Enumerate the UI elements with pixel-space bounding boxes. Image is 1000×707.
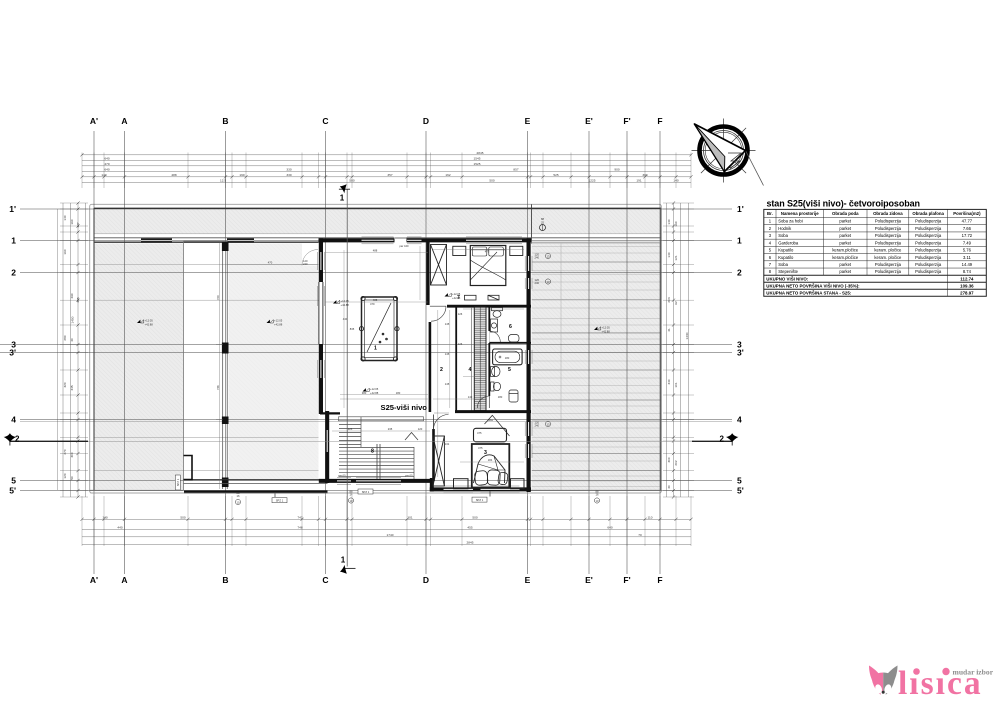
svg-text:7.66: 7.66: [963, 226, 972, 231]
svg-text:13: 13: [547, 422, 550, 426]
svg-text:488: 488: [171, 173, 176, 177]
svg-text:7.49: 7.49: [963, 240, 972, 245]
svg-text:140: 140: [102, 516, 107, 520]
svg-text:UKUPNA NETO POVRŠINA STANA - S: UKUPNA NETO POVRŠINA STANA - S25:: [766, 290, 852, 295]
svg-text:Stepenište: Stepenište: [778, 269, 798, 274]
svg-text:2845: 2845: [477, 151, 484, 155]
svg-text:2: 2: [11, 268, 16, 278]
svg-text:640: 640: [104, 157, 109, 161]
svg-text:mudar izbor: mudar izbor: [953, 668, 994, 677]
svg-text:240: 240: [303, 262, 308, 266]
svg-text:112.74: 112.74: [960, 276, 974, 281]
svg-text:parket: parket: [839, 233, 851, 238]
svg-text:2845: 2845: [467, 541, 474, 545]
svg-text:A': A': [90, 116, 98, 126]
svg-text:395: 395: [76, 297, 80, 302]
svg-text:525: 525: [553, 173, 558, 177]
svg-text:309: 309: [642, 173, 647, 177]
svg-text:270: 270: [63, 449, 67, 454]
svg-text:2: 2: [440, 367, 443, 373]
svg-text:Poludisperzija: Poludisperzija: [875, 262, 902, 267]
svg-text:490: 490: [70, 293, 74, 298]
svg-text:300: 300: [667, 457, 671, 462]
svg-text:2: 2: [720, 434, 725, 443]
svg-text:748: 748: [216, 385, 220, 390]
svg-text:F: F: [657, 575, 662, 585]
svg-text:120: 120: [418, 427, 423, 431]
svg-text:500: 500: [349, 179, 354, 183]
svg-text:F: F: [657, 116, 662, 126]
svg-text:+42.88: +42.88: [452, 296, 461, 300]
svg-text:C: C: [322, 116, 328, 126]
svg-text:345: 345: [70, 385, 74, 390]
svg-text:500: 500: [472, 516, 477, 520]
svg-text:F': F': [623, 575, 630, 585]
svg-text:+12.05: +12.05: [602, 326, 611, 330]
svg-text:147: 147: [76, 222, 80, 227]
svg-text:145: 145: [445, 322, 450, 326]
svg-text:Poludisperzija: Poludisperzija: [875, 240, 902, 245]
svg-text:235: 235: [388, 427, 393, 431]
svg-text:1545: 1545: [474, 157, 481, 161]
svg-text:1450: 1450: [71, 316, 75, 323]
svg-text:Namena prostorije: Namena prostorije: [781, 211, 819, 216]
svg-text:184: 184: [488, 458, 493, 462]
svg-text:488: 488: [373, 248, 378, 252]
svg-text:+42.88: +42.88: [274, 323, 283, 327]
svg-text:440: 440: [117, 526, 122, 530]
svg-text:470: 470: [268, 261, 273, 265]
svg-text:SPZ 1: SPZ 1: [362, 490, 370, 494]
svg-text:par 100: par 100: [399, 244, 409, 248]
svg-text:640: 640: [104, 168, 109, 172]
svg-text:25: 25: [541, 221, 544, 225]
svg-text:70: 70: [638, 533, 642, 537]
svg-text:145: 145: [445, 352, 450, 356]
svg-text:1: 1: [341, 556, 346, 565]
svg-text:+12.05: +12.05: [145, 319, 154, 323]
svg-text:4: 4: [11, 415, 16, 425]
svg-text:2: 2: [737, 268, 742, 278]
svg-text:B: B: [222, 116, 228, 126]
svg-text:160: 160: [70, 219, 74, 224]
svg-text:1225: 1225: [589, 179, 596, 183]
svg-text:180: 180: [505, 356, 510, 360]
svg-text:320: 320: [63, 382, 67, 387]
svg-text:5': 5': [737, 486, 744, 496]
svg-text:160: 160: [63, 249, 67, 254]
svg-text:Obrada poda: Obrada poda: [832, 211, 859, 216]
svg-text:3': 3': [9, 348, 16, 358]
svg-text:357: 357: [387, 173, 392, 177]
svg-text:121: 121: [674, 255, 678, 260]
svg-text:parket: parket: [839, 269, 851, 274]
svg-text:SPZ 1: SPZ 1: [476, 498, 484, 502]
svg-text:stan S25(viši nivo)- četvoroip: stan S25(viši nivo)- četvoroiposoban: [767, 199, 920, 209]
svg-text:140: 140: [101, 173, 106, 177]
svg-text:Poludisperzija: Poludisperzija: [915, 240, 942, 245]
svg-text:10: 10: [237, 500, 240, 504]
svg-text:+12.05: +12.05: [370, 387, 379, 391]
svg-text:12.5: 12.5: [220, 179, 226, 183]
svg-text:340: 340: [667, 379, 671, 384]
svg-text:parket: parket: [839, 240, 851, 245]
svg-text:parket: parket: [839, 219, 851, 224]
svg-text:parket: parket: [839, 226, 851, 231]
svg-text:E: E: [525, 575, 531, 585]
svg-text:101: 101: [407, 516, 412, 520]
svg-text:3.11: 3.11: [963, 255, 972, 260]
svg-text:455: 455: [467, 526, 472, 530]
svg-text:50: 50: [70, 476, 74, 480]
svg-text:160: 160: [674, 221, 678, 226]
svg-text:keram. pločice: keram. pločice: [874, 248, 902, 253]
svg-text:+12.05: +12.05: [341, 299, 350, 303]
svg-text:8.74: 8.74: [963, 269, 972, 274]
svg-text:5.76: 5.76: [963, 248, 972, 253]
svg-text:D: D: [423, 575, 429, 585]
svg-text:Poludisperzija: Poludisperzija: [915, 255, 942, 260]
svg-text:SPZ 1: SPZ 1: [176, 478, 180, 486]
svg-text:14.49: 14.49: [962, 262, 973, 267]
svg-text:479: 479: [370, 302, 375, 306]
svg-text:Obrada plafona: Obrada plafona: [912, 211, 944, 216]
svg-text:1: 1: [374, 346, 377, 352]
svg-text:140: 140: [673, 179, 678, 183]
svg-text:par.60: par.60: [338, 473, 346, 477]
svg-text:190: 190: [239, 173, 244, 177]
svg-text:140: 140: [468, 395, 473, 399]
svg-text:500: 500: [180, 516, 185, 520]
svg-text:Kupatilo: Kupatilo: [778, 248, 794, 253]
svg-text:62: 62: [674, 301, 678, 305]
svg-text:131: 131: [445, 442, 450, 446]
svg-text:120: 120: [63, 473, 67, 478]
svg-text:110: 110: [648, 516, 653, 520]
svg-text:Hodnik: Hodnik: [778, 226, 792, 231]
svg-text:Poludisperzija: Poludisperzija: [915, 219, 942, 224]
svg-text:1': 1': [737, 204, 744, 214]
svg-text:56w: 56w: [488, 418, 493, 422]
svg-text:Poludisperzija: Poludisperzija: [875, 219, 902, 224]
svg-text:13: 13: [547, 254, 550, 258]
svg-text:140: 140: [667, 219, 671, 224]
svg-text:5: 5: [737, 476, 742, 486]
svg-text:300: 300: [70, 452, 74, 457]
svg-text:6: 6: [509, 324, 512, 330]
svg-text:41: 41: [667, 328, 671, 332]
svg-text:keram.pločice: keram.pločice: [832, 255, 859, 260]
svg-text:UKUPNO VIŠI NIVO:: UKUPNO VIŠI NIVO:: [766, 276, 808, 281]
svg-text:475: 475: [485, 249, 490, 253]
svg-text:A: A: [121, 116, 127, 126]
svg-text:1430: 1430: [685, 332, 689, 339]
svg-text:10: 10: [350, 499, 353, 503]
svg-text:+12.05: +12.05: [274, 319, 283, 323]
svg-text:E': E': [585, 116, 593, 126]
svg-text:1: 1: [737, 236, 742, 246]
svg-text:278.97: 278.97: [960, 290, 974, 295]
svg-text:1: 1: [340, 194, 345, 203]
svg-text:Poludisperzija: Poludisperzija: [915, 233, 942, 238]
svg-text:180: 180: [396, 391, 401, 395]
svg-text:+42.88: +42.88: [145, 323, 154, 327]
svg-text:16: 16: [350, 493, 353, 497]
svg-text:202: 202: [674, 460, 678, 465]
svg-text:5: 5: [508, 367, 511, 373]
svg-text:17.72: 17.72: [962, 233, 973, 238]
svg-text:500: 500: [489, 179, 494, 183]
svg-text:857: 857: [513, 168, 518, 172]
svg-text:1525: 1525: [474, 162, 481, 166]
svg-text:330: 330: [286, 168, 291, 172]
svg-text:30: 30: [667, 485, 671, 489]
svg-text:2: 2: [15, 434, 20, 443]
svg-text:16: 16: [596, 493, 599, 497]
svg-text:1': 1': [9, 204, 16, 214]
svg-text:B: B: [222, 575, 228, 585]
svg-text:125: 125: [348, 427, 353, 431]
svg-text:240: 240: [535, 424, 540, 428]
svg-text:88: 88: [541, 217, 544, 221]
svg-text:Soba: Soba: [778, 262, 788, 267]
svg-text:1: 1: [11, 236, 16, 246]
svg-text:8: 8: [371, 449, 374, 455]
svg-text:S25-viši nivo: S25-viši nivo: [381, 403, 428, 412]
svg-text:140: 140: [667, 252, 671, 257]
svg-text:835: 835: [350, 327, 355, 331]
svg-text:140: 140: [63, 215, 67, 220]
svg-text:Poludisperzija: Poludisperzija: [875, 233, 902, 238]
svg-text:Br.: Br.: [767, 211, 773, 216]
svg-text:475: 475: [478, 446, 483, 450]
svg-text:5: 5: [11, 476, 16, 486]
svg-text:5': 5': [9, 486, 16, 496]
svg-text:Poludisperzija: Poludisperzija: [915, 269, 942, 274]
svg-text:+42.88: +42.88: [341, 303, 350, 307]
svg-text:Poludisperzija: Poludisperzija: [875, 269, 902, 274]
svg-text:109.36: 109.36: [960, 283, 974, 288]
svg-text:126: 126: [458, 342, 463, 346]
svg-text:+42.88: +42.88: [602, 330, 611, 334]
svg-text:Garderoba: Garderoba: [778, 240, 799, 245]
svg-text:+42.88: +42.88: [370, 391, 379, 395]
svg-text:748: 748: [297, 526, 302, 530]
svg-text:640: 640: [607, 526, 612, 530]
svg-text:40: 40: [70, 338, 74, 342]
svg-text:742: 742: [297, 516, 302, 520]
svg-text:488: 488: [373, 298, 378, 302]
svg-text:1740: 1740: [387, 533, 394, 537]
svg-text:280: 280: [63, 335, 67, 340]
svg-text:D: D: [423, 116, 429, 126]
svg-text:C: C: [322, 575, 328, 585]
svg-text:Poludisperzija: Poludisperzija: [915, 262, 942, 267]
svg-text:47.77: 47.77: [962, 219, 973, 224]
svg-text:+12.05: +12.05: [452, 292, 461, 296]
svg-text:101: 101: [674, 382, 678, 387]
svg-text:240: 240: [535, 256, 540, 260]
svg-text:4: 4: [469, 367, 472, 373]
svg-text:240: 240: [535, 281, 540, 285]
svg-text:Poludisperzija: Poludisperzija: [915, 248, 942, 253]
svg-text:keram.pločice: keram.pločice: [832, 248, 859, 253]
svg-text:4: 4: [737, 415, 742, 425]
svg-text:A: A: [121, 575, 127, 585]
svg-text:keram. pločice: keram. pločice: [874, 255, 902, 260]
svg-text:UKUPNA NETO POVRŠINA VIŠI NIVO: UKUPNA NETO POVRŠINA VIŠI NIVO (-35%):: [766, 283, 860, 288]
svg-text:par.60: par.60: [405, 473, 413, 477]
svg-text:13: 13: [547, 280, 550, 284]
svg-text:SPZ 1: SPZ 1: [276, 499, 284, 503]
svg-text:475: 475: [477, 431, 482, 435]
svg-text:A': A': [90, 575, 98, 585]
svg-text:16: 16: [237, 494, 240, 498]
svg-text:E: E: [525, 116, 531, 126]
svg-text:Poludisperzija: Poludisperzija: [875, 226, 902, 231]
svg-text:191: 191: [636, 179, 641, 183]
svg-text:162: 162: [445, 173, 450, 177]
svg-text:Površina(m2): Površina(m2): [953, 211, 981, 216]
svg-text:3': 3': [737, 348, 744, 358]
svg-text:Poludisperzija: Poludisperzija: [915, 226, 942, 231]
svg-text:180: 180: [498, 395, 503, 399]
svg-text:E': E': [585, 575, 593, 585]
svg-text:900: 900: [614, 168, 619, 172]
svg-text:Soba: Soba: [778, 233, 788, 238]
svg-text:parket: parket: [839, 262, 851, 267]
svg-text:F': F': [623, 116, 630, 126]
svg-text:330: 330: [286, 173, 291, 177]
svg-text:720: 720: [216, 295, 220, 300]
svg-text:145: 145: [445, 382, 450, 386]
svg-text:470: 470: [104, 162, 109, 166]
svg-text:126: 126: [458, 312, 463, 316]
svg-text:Soba za hobi: Soba za hobi: [778, 219, 803, 224]
svg-text:Obrada zidova: Obrada zidova: [873, 211, 903, 216]
svg-text:Kupatilo: Kupatilo: [778, 255, 794, 260]
svg-text:10: 10: [596, 499, 599, 503]
svg-text:3: 3: [484, 450, 487, 456]
svg-text:203: 203: [667, 297, 671, 302]
